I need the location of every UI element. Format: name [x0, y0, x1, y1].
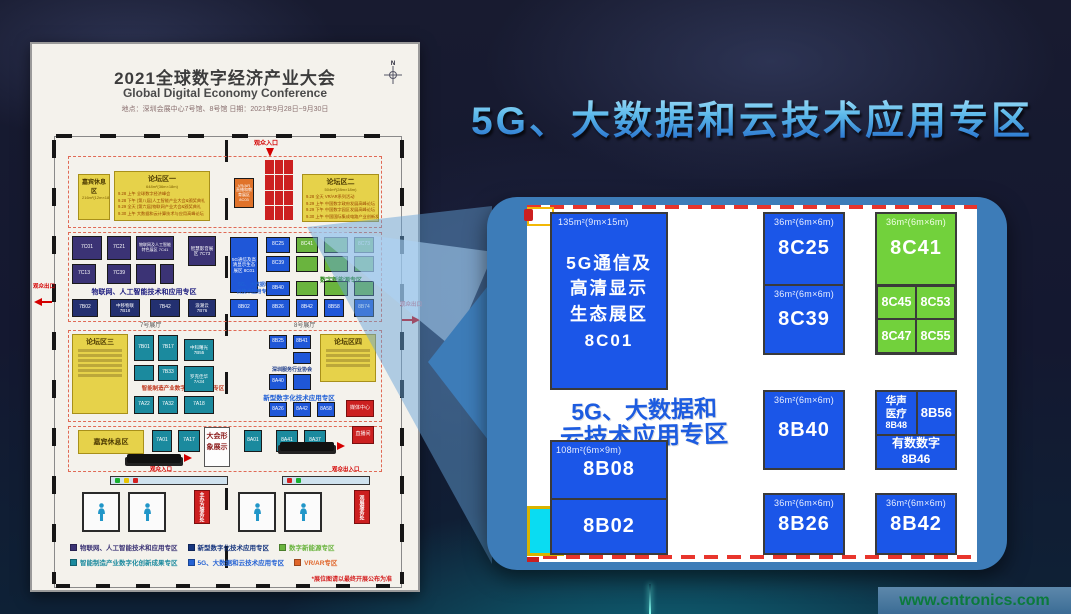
booth-8b08-8b02: 108m²(6m×9m) 8B08 8B02 [550, 440, 668, 555]
booth-8b42: 36m²(6m×6m) 8B42 [875, 493, 957, 555]
booth-7b17: 7B17 [158, 335, 178, 361]
booth-7c21: 7C21 [107, 236, 131, 260]
legend-swatch [188, 559, 195, 566]
legend-swatch [188, 544, 195, 551]
booth-size: 36m²(6m×6m) [877, 498, 955, 508]
booth-8a01: 8A01 [244, 430, 262, 452]
booth-vrar-8c03: VR/AR 直播和教育展区 8C03 [234, 178, 254, 208]
exit-left-arrow-stem [42, 301, 52, 303]
mini-booth [324, 256, 348, 272]
entrance-gate [282, 476, 370, 485]
booth-8b25: 8B25 [269, 335, 287, 349]
booth-code: 8B08 [583, 458, 635, 481]
booth-code: 8B48 [886, 420, 908, 431]
legend-label: 新型数字化技术应用专区 [198, 542, 270, 552]
forum3-title: 论坛区三 [76, 337, 124, 347]
entrance-bottom-inout-label: 观众出入口 [332, 465, 360, 473]
forum2-title: 论坛区二 [306, 177, 375, 187]
gate-dot [124, 478, 129, 483]
booth-7c13: 7C13 [72, 264, 96, 284]
booth-8c39-mini: 8C39 [266, 256, 290, 272]
guest-rest2-label: 嘉宾休息区 [94, 437, 129, 447]
mini-booth [275, 160, 284, 174]
booth-7b33: 7B33 [158, 365, 178, 381]
booth-code: 8C25 [778, 237, 830, 260]
booth-8b26-mini: 8B26 [266, 299, 290, 317]
mini-booth [296, 256, 318, 272]
legend-item: 物联网、人工智能技术和应用专区 [70, 542, 178, 552]
restroom [128, 492, 166, 532]
booth-7a22: 7A22 [134, 396, 154, 414]
forum3-area: 论坛区三 [72, 334, 128, 414]
zone-digital-label: 新型数字化技术应用专区 [258, 392, 340, 402]
booth-7c39: 7C39 [107, 264, 131, 284]
corner-marker-red [524, 209, 533, 221]
truss-arrow-icon [184, 454, 192, 462]
wall-left [52, 140, 56, 584]
booth-7c73: 智慧影音展区 7C73 [188, 236, 216, 266]
booth-code-8b56: 8B56 [918, 392, 955, 434]
restroom [284, 492, 322, 532]
stage-truss [280, 442, 334, 451]
booth-8b02-mini: 8B02 [230, 299, 258, 317]
red-booth-cluster [265, 160, 293, 220]
mini-booth [324, 281, 348, 296]
booth-7b01: 7B01 [134, 335, 154, 361]
guest-rest-area-2: 嘉宾休息区 [78, 430, 144, 454]
booth-8b74-mini: 8B74 [354, 299, 374, 317]
legend-item: 新型数字化技术应用专区 [188, 542, 270, 552]
booth-8c25-8c39: 36m²(6m×6m) 8C25 36m²(6m×6m) 8C39 [763, 212, 845, 355]
hall8-label: 8号展厅 [294, 320, 315, 329]
legend-item: 智能制造产业数字化创新成果专区 [70, 557, 178, 567]
media-center: 媒体中心 [346, 400, 374, 417]
booth-7a32: 7A32 [158, 396, 178, 414]
booth-code: 8B42 [890, 513, 942, 536]
booth-8b42-mini: 8B42 [296, 299, 318, 317]
entrance-top-label: 观众入口 [254, 138, 278, 147]
zone-iot-label: 物联网、人工智能技术和应用专区 [76, 287, 212, 297]
booth-8b48-complex: 华声 医疗 8B48 8B56 有数数字 8B46 [875, 390, 957, 470]
booth-7c01: 7C01 [72, 236, 102, 260]
booth-8c41-block: 36m²(6m×6m) 8C41 8C45 8C53 8C47 8C55 [875, 212, 957, 355]
forum2-schedule: 9.28 全天 VR/AR系列活动9.29 上午 中国数字政府发展高峰论坛9.2… [306, 194, 375, 221]
booth-8c41-mini: 8C41 [296, 237, 318, 253]
hall7-label: 7号展厅 [140, 320, 161, 329]
mini-booth [293, 374, 311, 390]
booth-8b40: 36m²(6m×6m) 8B40 [763, 390, 845, 470]
display-area: 大会形象展示 [204, 427, 230, 467]
legend-label: 数字新能源专区 [289, 542, 335, 552]
light-beam-decoration [649, 584, 651, 614]
guest-rest-label: 嘉宾休息区 [82, 177, 106, 195]
booth-name-line: 5G通信及 [566, 251, 652, 276]
booth-7b02: 7B02 [72, 299, 98, 317]
legend-swatch [70, 559, 77, 566]
booth-name-line: 医疗 [886, 408, 907, 421]
mini-booth [160, 264, 174, 284]
red-fragment [527, 557, 539, 562]
legend-label: 物联网、人工智能技术和应用专区 [80, 542, 178, 552]
booth-size: 108m²(6m×9m) [552, 445, 666, 455]
dashed-border-top [527, 205, 977, 209]
mini-booth [265, 206, 274, 220]
legend-label: VR/AR专区 [304, 557, 337, 567]
legend-swatch [294, 559, 301, 566]
forum4-schedule-placeholder [324, 349, 372, 367]
booth-7b42: 7B42 [150, 299, 180, 317]
person-icon [252, 503, 263, 522]
booth-name-line: 生态展区 [566, 302, 652, 327]
stage-truss [127, 454, 181, 463]
forum-schedule-line: 9.30 上午 中国国际集成电路产业创新发展高峰论坛 [306, 214, 375, 221]
mini-booth [275, 175, 284, 189]
mini-booth [265, 175, 274, 189]
booth-name-line: 有数数字 [892, 436, 940, 452]
legend-label: 智能制造产业数字化创新成果专区 [80, 557, 178, 567]
mini-booth [284, 160, 293, 174]
booth-7a34: 罗克佳华 7A34 [184, 366, 214, 392]
booth-code: 8B46 [902, 452, 931, 468]
dashed-border-bottom [543, 555, 977, 559]
wall-bottom [56, 584, 400, 588]
legend-item: VR/AR专区 [294, 557, 337, 567]
mini-booth [354, 281, 374, 296]
forum-schedule-line: 9.28 上午 全球数字经济峰会 [118, 191, 206, 198]
truss-arrow-icon [337, 442, 345, 450]
exit-right-arrow-icon [412, 316, 420, 324]
forum1-title: 论坛区一 [118, 174, 206, 184]
floorplan: 2021全球数字经济产业大会 Global Digital Economy Co… [30, 42, 420, 592]
booth-8b41: 8B41 [293, 335, 311, 349]
exit-right-label: 观众出口 [400, 302, 424, 309]
person-icon [298, 503, 309, 522]
entrance-bottom-in-label: 观众入口 [150, 465, 172, 473]
wall-right [400, 140, 404, 584]
legend: 物联网、人工智能技术和应用专区 新型数字化技术应用专区 数字新能源专区 智能制造… [70, 542, 406, 572]
forum2-area: 论坛区二 504m²(28m×18m) 9.28 全天 VR/AR系列活动9.2… [302, 174, 379, 222]
mini-booth [136, 264, 156, 284]
mini-booth [265, 191, 274, 205]
forum4-area: 论坛区四 [320, 334, 376, 382]
booth-size: 36m²(6m×6m) [765, 217, 843, 227]
detail-panel-content: 135m²(9m×15m) 5G通信及 高清显示 生态展区 8C01 5G、大数… [527, 205, 977, 562]
booth-7a17: 7A17 [178, 430, 200, 452]
legend-item: 数字新能源专区 [279, 542, 335, 552]
booth-code-8c45: 8C45 [877, 286, 916, 320]
forum3-schedule-placeholder [76, 349, 124, 377]
booth-code-8c53: 8C53 [916, 286, 955, 320]
exit-left-label: 观众出口 [33, 284, 57, 291]
floorplan-meta: 地点：深圳会展中心7号馆、8号馆 日期：2021年9月28日~9月30日 [32, 104, 418, 114]
guest-rest-area: 嘉宾休息区 216m²(12m×18m) [78, 174, 110, 220]
booth-8a42: 8A42 [293, 402, 311, 417]
forum-schedule-line: 9.30 上午 大数据和云计算技术与应用高峰论坛 [118, 211, 206, 218]
legend-swatch [70, 544, 77, 551]
service-desk-host: 主办方服务处 [194, 490, 210, 524]
booth-8c73-mini: 8C73 [354, 237, 374, 253]
booth-code: 8B40 [778, 419, 830, 442]
legend-label: 5G、大数据和云技术应用专区 [198, 557, 285, 567]
forum-schedule-line: 9.28 全天 VR/AR系列活动 [306, 194, 375, 201]
mini-booth [275, 206, 284, 220]
booth-name-line: 华声 [886, 395, 907, 408]
vrar-code: 8C03 [239, 198, 249, 203]
live-room: 直播间 [352, 426, 374, 444]
booth-size: 135m²(9m×15m) [552, 217, 666, 227]
booth-size: 36m²(6m×6m) [765, 289, 843, 299]
entrance-gate [110, 476, 228, 485]
headline: 5G、大数据和云技术应用专区 [437, 90, 1067, 146]
page: 2021全球数字经济产业大会 Global Digital Economy Co… [0, 0, 1071, 614]
gate-dot [287, 478, 292, 483]
gate-dot [115, 478, 120, 483]
booth-code-8c47: 8C47 [877, 319, 916, 353]
mini-booth [354, 256, 374, 272]
detail-panel: 135m²(9m×15m) 5G通信及 高清显示 生态展区 8C01 5G、大数… [487, 197, 1007, 570]
booth-8b40-mini: 8B40 [266, 281, 290, 296]
booth-code-8c55: 8C55 [916, 319, 955, 353]
mini-booth [324, 237, 348, 253]
wall-top [56, 134, 400, 138]
booth-7b55: 中科曙光 7B55 [184, 339, 214, 361]
booth-8c01: 135m²(9m×15m) 5G通信及 高清显示 生态展区 8C01 [550, 212, 668, 390]
booth-8c25-mini: 8C25 [266, 237, 290, 253]
compass-icon: N [382, 58, 406, 86]
watermark: www.cntronics.com [878, 587, 1071, 614]
booth-8a26: 8A26 [269, 402, 287, 417]
booth-size: 36m²(6m×6m) [765, 395, 843, 405]
booth-name-line: 高清显示 [566, 276, 652, 301]
legend-item: 5G、大数据和云技术应用专区 [188, 557, 285, 567]
booth-code: 8C01 [585, 331, 634, 351]
mini-booth [293, 352, 311, 364]
mini-booth [296, 281, 318, 296]
guest-rest-size: 216m²(12m×18m) [82, 195, 106, 200]
floorplan-subtitle: Global Digital Economy Conference [32, 86, 418, 100]
exit-right-arrow-stem [402, 319, 412, 321]
booth-7b76: 浪潮云 7B76 [188, 299, 216, 317]
legend-swatch [279, 544, 286, 551]
booth-code: 8C41 [890, 237, 942, 260]
service-desk-visitor: 观展服务处 [354, 490, 370, 524]
booth-7a01: 7A01 [152, 430, 172, 452]
booth-size: 36m²(6m×6m) [765, 498, 843, 508]
booth-7a18: 7A18 [184, 396, 214, 414]
forum2-size: 504m²(28m×18m) [306, 187, 375, 192]
mini-booth [134, 365, 154, 381]
mini-booth [265, 160, 274, 174]
person-icon [142, 503, 153, 522]
restroom [238, 492, 276, 532]
booth-size: 36m²(6m×6m) [877, 217, 955, 227]
restroom [82, 492, 120, 532]
booth-code: 8C39 [778, 308, 830, 331]
forum1-area: 论坛区一 648m²(36m×18m) 9.28 上午 全球数字经济峰会9.28… [114, 171, 210, 221]
booth-7c41: 物联网及人工智能特色展区 7C41 [136, 236, 174, 260]
booth-7b18: 中移物联 7B18 [110, 299, 140, 317]
forum1-schedule: 9.28 上午 全球数字经济峰会9.28 下午 (第八届)人工智能产业大会&颁奖… [118, 191, 206, 218]
footnote: *展位图请以最终开展公布为准 [312, 574, 392, 583]
mini-booth [284, 191, 293, 205]
booth-code: 8B26 [778, 513, 830, 536]
booth-8a40: 8A40 [269, 374, 287, 390]
booth-8a58: 8A58 [317, 402, 335, 417]
booth-8b58-mini: 8B58 [324, 299, 344, 317]
booth-8b26: 36m²(6m×6m) 8B26 [763, 493, 845, 555]
exit-left-arrow-icon [34, 298, 42, 306]
gate-dot [296, 478, 301, 483]
booth-code: 8B02 [583, 515, 635, 538]
person-icon [96, 503, 107, 522]
forum4-title: 论坛区四 [324, 337, 372, 347]
mini-booth [284, 206, 293, 220]
forum1-size: 648m²(36m×18m) [118, 184, 206, 189]
mini-booth [275, 191, 284, 205]
assoc-label: 深圳服务行业协会 [262, 366, 322, 373]
gate-dot [133, 478, 138, 483]
mini-booth [284, 175, 293, 189]
